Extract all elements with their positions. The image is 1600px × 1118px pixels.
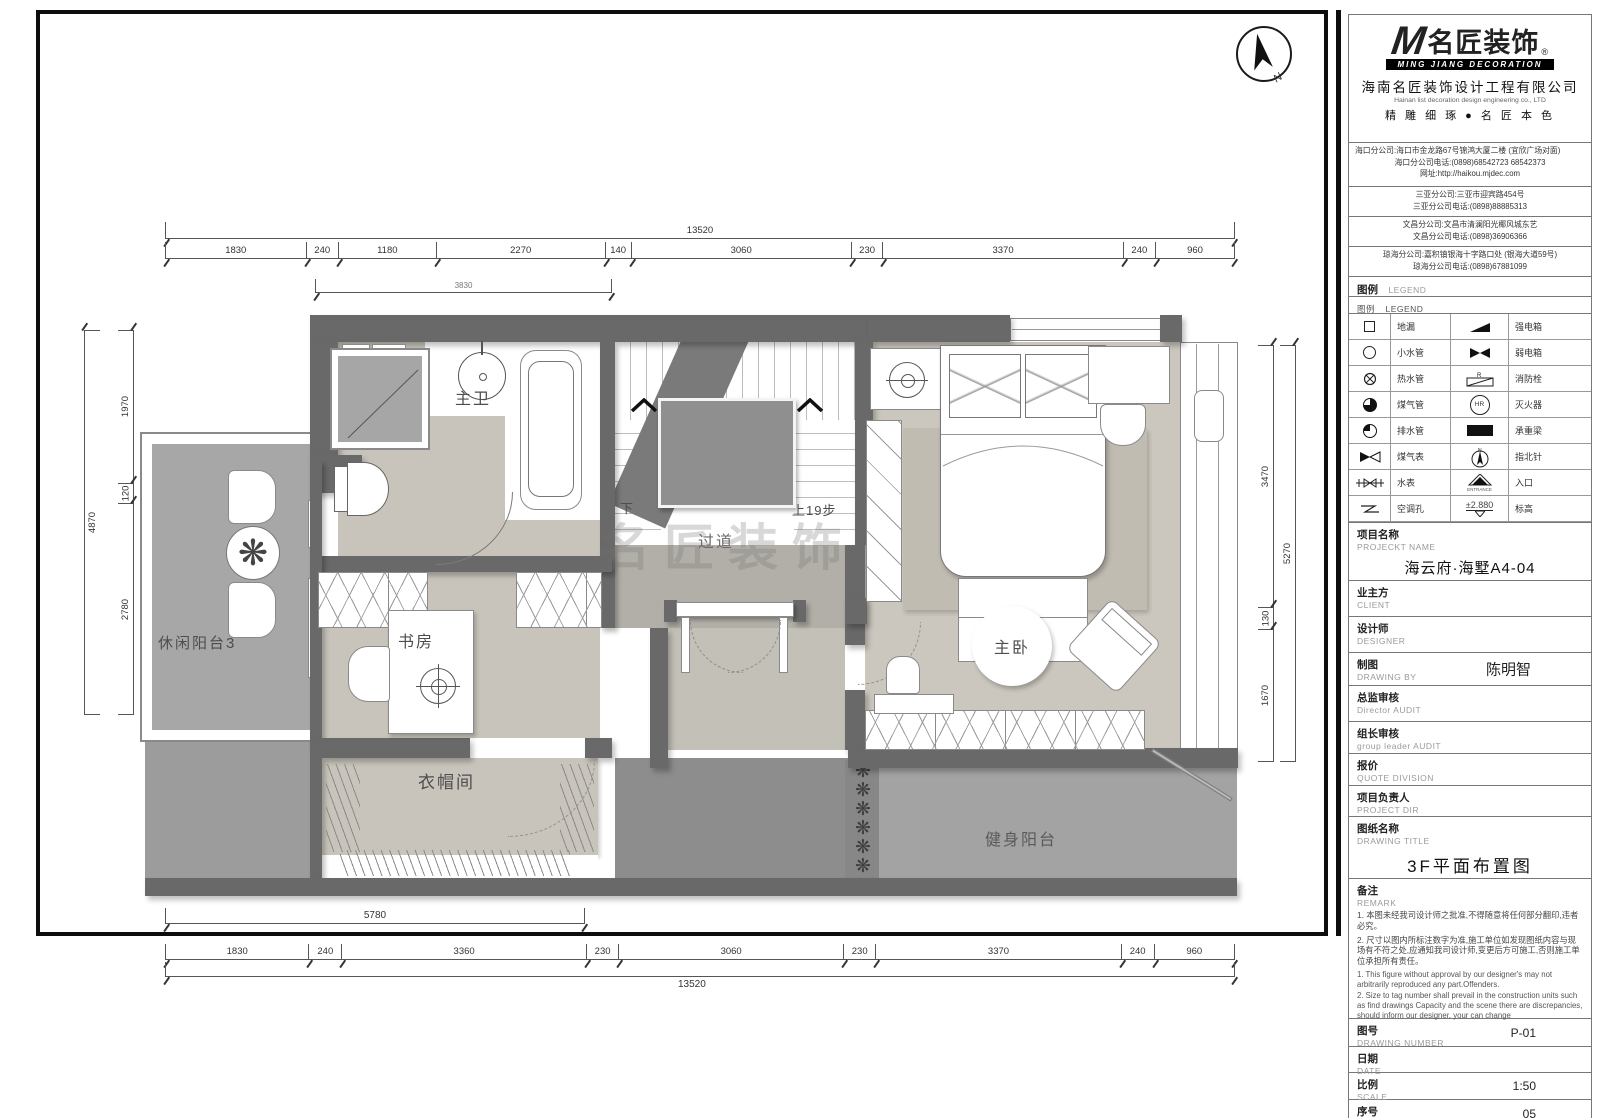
legend-title-zh: 图例 — [1357, 284, 1378, 296]
study-label: 书房 — [398, 628, 434, 652]
legend-subheader: 图例 LEGEND — [1349, 297, 1591, 314]
field-date: 日期 DATE — [1349, 1047, 1591, 1073]
door-jamb-2 — [793, 600, 806, 622]
plant-strip-icon: ❋❋❋❋❋❋ — [845, 760, 879, 874]
field-label-en: DESIGNER — [1357, 636, 1583, 646]
dim-bottom-total — [165, 962, 1235, 977]
field-label-zh: 日期 — [1357, 1051, 1583, 1066]
wall-bedroom-left-b — [845, 690, 865, 750]
north-arrow-icon: N — [1236, 26, 1292, 82]
balcony-chair-2 — [228, 582, 276, 638]
remark-zh-1: 1. 本图未经我司设计师之批准,不得随意将任何部分翻印,违者必究。 — [1357, 910, 1583, 932]
dim-seg: 130 — [1258, 607, 1273, 628]
field-label-zh: 设计师 — [1357, 621, 1583, 636]
number-value: 05 — [1523, 1107, 1536, 1118]
stair-landing — [658, 398, 796, 508]
scale-value: 1:50 — [1513, 1079, 1536, 1093]
balcony-chair-1 — [228, 470, 276, 524]
field-label-en: QUOTE DIVISION — [1357, 773, 1583, 783]
leisure-balcony-label: 休闲阳台3 — [158, 632, 236, 653]
titleblock-divider — [1336, 10, 1341, 936]
bed — [940, 345, 1106, 577]
cloak-hang-bottom — [340, 850, 570, 876]
branch-sanya: 三亚分公司:三亚市迎宾路454号 三亚分公司电话:(0898)88885313 — [1349, 187, 1591, 217]
field-label-zh: 制图 — [1357, 657, 1583, 672]
legend-label: 热水管 — [1391, 366, 1451, 392]
company-slogan: 精 雕 细 琢 ● 名 匠 本 色 — [1357, 107, 1583, 123]
dim-seg: 3370 — [882, 242, 1122, 258]
branch-qionghai: 琼海分公司:嘉积镇银海十字路口处 (银海大道59号) 琼海分公司电话:(0898… — [1349, 247, 1591, 277]
field-remark: 备注 REMARK 1. 本图未经我司设计师之批准,不得随意将任何部分翻印,违者… — [1349, 879, 1591, 1019]
field-label-zh: 组长审核 — [1357, 726, 1583, 741]
drawing-by-value: 陈明智 — [1486, 659, 1531, 680]
door-jamb-3 — [845, 598, 867, 624]
company-name-en: Hainan list decoration design engineerin… — [1357, 97, 1583, 104]
field-label-en: PROJECT DIR — [1357, 805, 1583, 815]
sink-drain — [479, 373, 487, 381]
branch-line: 文昌分公司:文昌市清澜阳光椰风城东艺 — [1355, 220, 1585, 230]
field-label-en: DRAWING TITLE — [1357, 836, 1583, 846]
gas-meter-icon — [1359, 451, 1381, 463]
dim-top-total: 13520 — [165, 222, 1235, 239]
cabinet-hall-right — [516, 572, 602, 628]
stair-arrow-left — [630, 398, 658, 412]
dim-bottom-partial: 5780 — [165, 908, 585, 924]
weak-power-box-icon — [1469, 347, 1491, 359]
drawing-title-value: 3F平面布置图 — [1357, 852, 1583, 877]
corridor-label: 过道 — [698, 528, 734, 552]
toilet-bowl — [347, 462, 389, 516]
dim-seg: 1670 — [1258, 629, 1273, 762]
ac-hole-icon — [1359, 503, 1381, 515]
remark-en-1: 1. This figure without approval by our d… — [1357, 970, 1583, 989]
field-drawing-by: 制图 DRAWING BY 陈明智 — [1349, 653, 1591, 686]
entrance-icon — [1467, 474, 1493, 487]
dim-right-segments: 3470 130 1670 — [1258, 345, 1274, 762]
field-client: 业主方 CLIENT — [1349, 581, 1591, 617]
field-scale: 比例 SCALE 1:50 — [1349, 1073, 1591, 1100]
legend-label: 标高 — [1509, 496, 1591, 522]
logo-name: 名匠装饰 — [1427, 30, 1539, 57]
fitness-balcony-floor — [848, 768, 1237, 878]
field-quote: 报价 QUOTE DIVISION — [1349, 754, 1591, 786]
dim-top-partial: 3830 — [315, 279, 612, 293]
wall-top-bedroom — [868, 315, 1010, 342]
dim-seg: 3370 — [875, 944, 1121, 959]
field-project-dir: 项目负责人 PROJECT DIR — [1349, 786, 1591, 817]
study-chair — [348, 646, 390, 702]
field-director-audit: 总监审核 Director AUDIT — [1349, 686, 1591, 722]
target-inner — [431, 679, 447, 695]
branch-line: 三亚分公司:三亚市迎宾路454号 — [1355, 190, 1585, 200]
dim-seg: 1830 — [165, 242, 306, 258]
small-water-pipe-icon — [1363, 346, 1376, 359]
legend-label: 强电箱 — [1509, 314, 1591, 340]
titleblock: M 名匠装饰 ® MING JIANG DECORATION 海南名匠装饰设计工… — [1348, 14, 1592, 1118]
dim-right-total: 5270 — [1280, 345, 1296, 762]
dim-left-total: 4870 — [84, 330, 100, 715]
dim-seg: 1970 — [118, 330, 133, 483]
drain-pipe-icon — [1363, 424, 1377, 438]
legend-label: 小水管 — [1391, 340, 1451, 366]
entrance-text: ENTRANCE — [1467, 487, 1492, 492]
corridor-doorpost-1 — [681, 617, 690, 673]
bedroom-dresser-row — [865, 710, 1145, 750]
stair-arrow-right — [796, 398, 824, 412]
dim-seg: 3830 — [315, 279, 612, 292]
branch-line: 琼海分公司:嘉积镇银海十字路口处 (银海大道59号) — [1355, 250, 1585, 260]
bottom-left-terrace — [145, 742, 310, 878]
floor-drain-icon — [1364, 321, 1375, 332]
wall-study-bottom-b — [585, 738, 612, 758]
dim-seg: 5780 — [165, 908, 585, 923]
bedroom-desk-chair — [1100, 404, 1146, 446]
dim-seg: 5270 — [1280, 345, 1295, 762]
blanket-drape — [941, 422, 1105, 482]
legend-label: 煤气表 — [1391, 444, 1451, 470]
bathtub-inner — [528, 361, 574, 497]
dim-seg: 1830 — [165, 944, 308, 959]
hot-water-pipe-icon — [1363, 372, 1377, 386]
dim-seg: 4870 — [85, 330, 100, 715]
legend-label: 弱电箱 — [1509, 340, 1591, 366]
dim-bottom-total-label: 13520 — [678, 979, 706, 990]
dim-seg: 240 — [308, 944, 341, 959]
strong-power-box-icon — [1469, 321, 1491, 333]
legend-subtitle-zh: 图例 — [1357, 304, 1375, 314]
field-label-en: Director AUDIT — [1357, 705, 1583, 715]
legend-label: 消防栓 — [1509, 366, 1591, 392]
legend-title-en: LEGEND — [1388, 285, 1426, 295]
dim-seg: 230 — [586, 944, 618, 959]
legend-label: 空调孔 — [1391, 496, 1451, 522]
legend-label: 煤气管 — [1391, 392, 1451, 418]
water-meter-icon — [1356, 477, 1384, 489]
field-leader-audit: 组长审核 group leader AUDIT — [1349, 722, 1591, 754]
dim-seg: 2780 — [118, 503, 133, 715]
legend-header: 图例 LEGEND — [1349, 277, 1591, 297]
nightstand — [870, 348, 942, 410]
dim-top-segments: 1830 240 1180 2270 140 3060 230 3370 240… — [165, 242, 1235, 259]
field-label-zh: 业主方 — [1357, 585, 1583, 600]
fire-extinguisher-icon: HR — [1470, 395, 1490, 415]
field-label-zh: 图号 — [1357, 1023, 1583, 1038]
elevation-icon: ±2.880 — [1466, 500, 1493, 511]
legend-label: 地漏 — [1391, 314, 1451, 340]
legend-north-arrow-icon: N — [1470, 446, 1490, 468]
branch-line: 海口分公司:海口市金龙路67号锦鸿大厦二楼 (宜欣广场对面) — [1355, 146, 1585, 156]
bedroom-side-desk — [874, 694, 954, 714]
cloakroom-label: 衣帽间 — [418, 768, 475, 793]
field-designer: 设计师 DESIGNER — [1349, 617, 1591, 653]
field-label-zh: 项目负责人 — [1357, 790, 1583, 805]
field-label-zh: 项目名称 — [1357, 527, 1583, 542]
field-label-zh: 总监审核 — [1357, 690, 1583, 705]
shower-door-line — [332, 350, 432, 452]
bedroom-desk — [1088, 346, 1170, 404]
branch-line: 海口分公司电话:(0898)68542723 68542373 — [1355, 158, 1585, 168]
legend-label: 承重梁 — [1509, 418, 1591, 444]
bedroom-stool — [886, 656, 920, 694]
field-label-zh: 报价 — [1357, 758, 1583, 773]
bathtub-icon — [520, 350, 582, 510]
legend-label: 指北针 — [1509, 444, 1591, 470]
remark-zh-2: 2. 尺寸以图内所标注数字为准,施工单位如发现图纸内容与现场有不符之处,应通知我… — [1357, 935, 1583, 967]
legend-table: 地漏 强电箱 小水管 弱电箱 热水管 R 消防栓 煤气管 HR 灭火器 排水管 … — [1349, 314, 1591, 523]
dim-seg: 3060 — [618, 944, 843, 959]
branch-haikou: 海口分公司:海口市金龙路67号锦鸿大厦二楼 (宜欣广场对面) 海口分公司电话:(… — [1349, 143, 1591, 187]
dim-seg: 230 — [843, 944, 875, 959]
planter-strip: ❋❋❋❋❋❋ — [845, 760, 879, 878]
bedroom-label-circle: 主卧 — [972, 606, 1052, 686]
bathroom-label: 主卫 — [455, 385, 491, 409]
company-header: M 名匠装饰 ® MING JIANG DECORATION 海南名匠装饰设计工… — [1349, 15, 1591, 143]
dim-bottom-segments: 1830 240 3360 230 3060 230 3370 240 960 — [165, 944, 1235, 960]
dim-seg: 3470 — [1258, 345, 1273, 607]
elevation-triangle — [1475, 511, 1485, 517]
dim-left-segments: 1970 120 2780 — [118, 330, 134, 715]
legend-label: 排水管 — [1391, 418, 1451, 444]
remark-en-2: 2. Size to tag number shall prevail in t… — [1357, 991, 1583, 1020]
wall-top-main — [310, 315, 870, 342]
dim-seg — [165, 962, 1235, 976]
lamp-icon — [889, 362, 925, 398]
sink-tap — [481, 341, 483, 355]
bay-window-seat — [1194, 390, 1224, 442]
field-label-en: CLIENT — [1357, 600, 1583, 610]
logo-m: M — [1390, 25, 1428, 57]
bedroom-top-window-line — [1012, 329, 1160, 330]
cloak-hang-left — [326, 764, 360, 852]
toilet-icon — [334, 462, 390, 514]
lamp-cross-h — [886, 380, 928, 381]
field-label-zh: 序号 — [1357, 1104, 1583, 1118]
dim-seg: 240 — [1123, 242, 1155, 258]
wall-anteroom-left — [650, 628, 668, 768]
lamp-inner — [901, 374, 915, 388]
stair-down-label: 下 — [620, 498, 635, 517]
ceiling-target-icon — [420, 668, 456, 704]
fire-hydrant-icon: R — [1465, 370, 1495, 388]
branch-line: 文昌分公司电话:(0898)36906366 — [1355, 232, 1585, 242]
legend-label: 入口 — [1509, 470, 1591, 496]
branch-line: 网址:http://haikou.mjdec.com — [1355, 169, 1585, 179]
branch-line: 琼海分公司电话:(0898)67881099 — [1355, 262, 1585, 272]
stair-treads-right — [794, 420, 855, 545]
wall-cloak-left — [310, 758, 322, 878]
pillow-right — [1025, 354, 1097, 418]
wall-study-bottom-a — [310, 738, 470, 758]
branch-wenchang: 文昌分公司:文昌市清澜阳光椰风城东艺 文昌分公司电话:(0898)3690636… — [1349, 217, 1591, 247]
load-bearing-beam-icon — [1467, 425, 1493, 436]
balcony-plant-table: ❋ — [226, 526, 280, 580]
company-name: 海南名匠装饰设计工程有限公司 — [1357, 76, 1583, 96]
dim-seg: 3060 — [631, 242, 851, 258]
legend-subtitle-en: LEGEND — [1385, 304, 1423, 314]
corridor-doorbar — [676, 602, 794, 617]
field-label-en: PROJECKT NAME — [1357, 542, 1583, 552]
drawing-number-value: P-01 — [1511, 1026, 1536, 1040]
field-drawing-title: 图纸名称 DRAWING TITLE 3F平面布置图 — [1349, 817, 1591, 879]
plant-icon: ❋ — [238, 535, 268, 571]
fitness-balcony-label: 健身阳台 — [985, 826, 1057, 850]
field-label-en: group leader AUDIT — [1357, 741, 1583, 751]
dim-seg: 13520 — [165, 222, 1235, 238]
stair-up-label: 上19步 — [792, 500, 836, 519]
field-drawing-number: 图号 DRAWING NUMBER P-01 — [1349, 1019, 1591, 1047]
gas-pipe-icon — [1363, 398, 1377, 412]
wall-top-cap — [1160, 315, 1182, 342]
field-label-en: DRAWING BY — [1357, 672, 1583, 682]
legend-label: 灭火器 — [1509, 392, 1591, 418]
legend-label: 水表 — [1391, 470, 1451, 496]
project-name-value: 海云府·海墅A4-04 — [1357, 557, 1583, 578]
dim-seg: 230 — [851, 242, 883, 258]
bottom-middle-zone — [615, 758, 848, 878]
dim-seg: 960 — [1155, 242, 1235, 258]
bedroom-wardrobe — [866, 420, 902, 602]
wall-bottom-outer — [145, 878, 1237, 896]
branch-line: 三亚分公司电话:(0898)88885313 — [1355, 202, 1585, 212]
floorplan-sheet: N ❋❋❋❋❋❋ — [0, 0, 1600, 1118]
field-project-name: 项目名称 PROJECKT NAME 海云府·海墅A4-04 — [1349, 523, 1591, 581]
pillow-left — [949, 354, 1021, 418]
field-label-zh: 备注 — [1357, 883, 1583, 898]
bedroom-label: 主卧 — [994, 634, 1030, 658]
field-label-zh: 比例 — [1357, 1077, 1583, 1092]
field-label-en: REMARK — [1357, 898, 1583, 908]
dim-seg: 960 — [1154, 944, 1235, 959]
wall-stair-left — [600, 342, 615, 628]
dim-seg: 1180 — [338, 242, 436, 258]
shower-enclosure — [330, 348, 430, 450]
dim-seg: 240 — [1121, 944, 1154, 959]
logo: M 名匠装饰 ® — [1357, 25, 1583, 57]
dim-seg: 240 — [306, 242, 338, 258]
field-label-zh: 图纸名称 — [1357, 821, 1583, 836]
logo-reg: ® — [1541, 47, 1548, 57]
dim-seg: 3360 — [341, 944, 586, 959]
dim-seg: 2270 — [436, 242, 605, 258]
dim-seg: 140 — [605, 242, 631, 258]
field-number: 序号 NUMBER 05 — [1349, 1100, 1591, 1118]
